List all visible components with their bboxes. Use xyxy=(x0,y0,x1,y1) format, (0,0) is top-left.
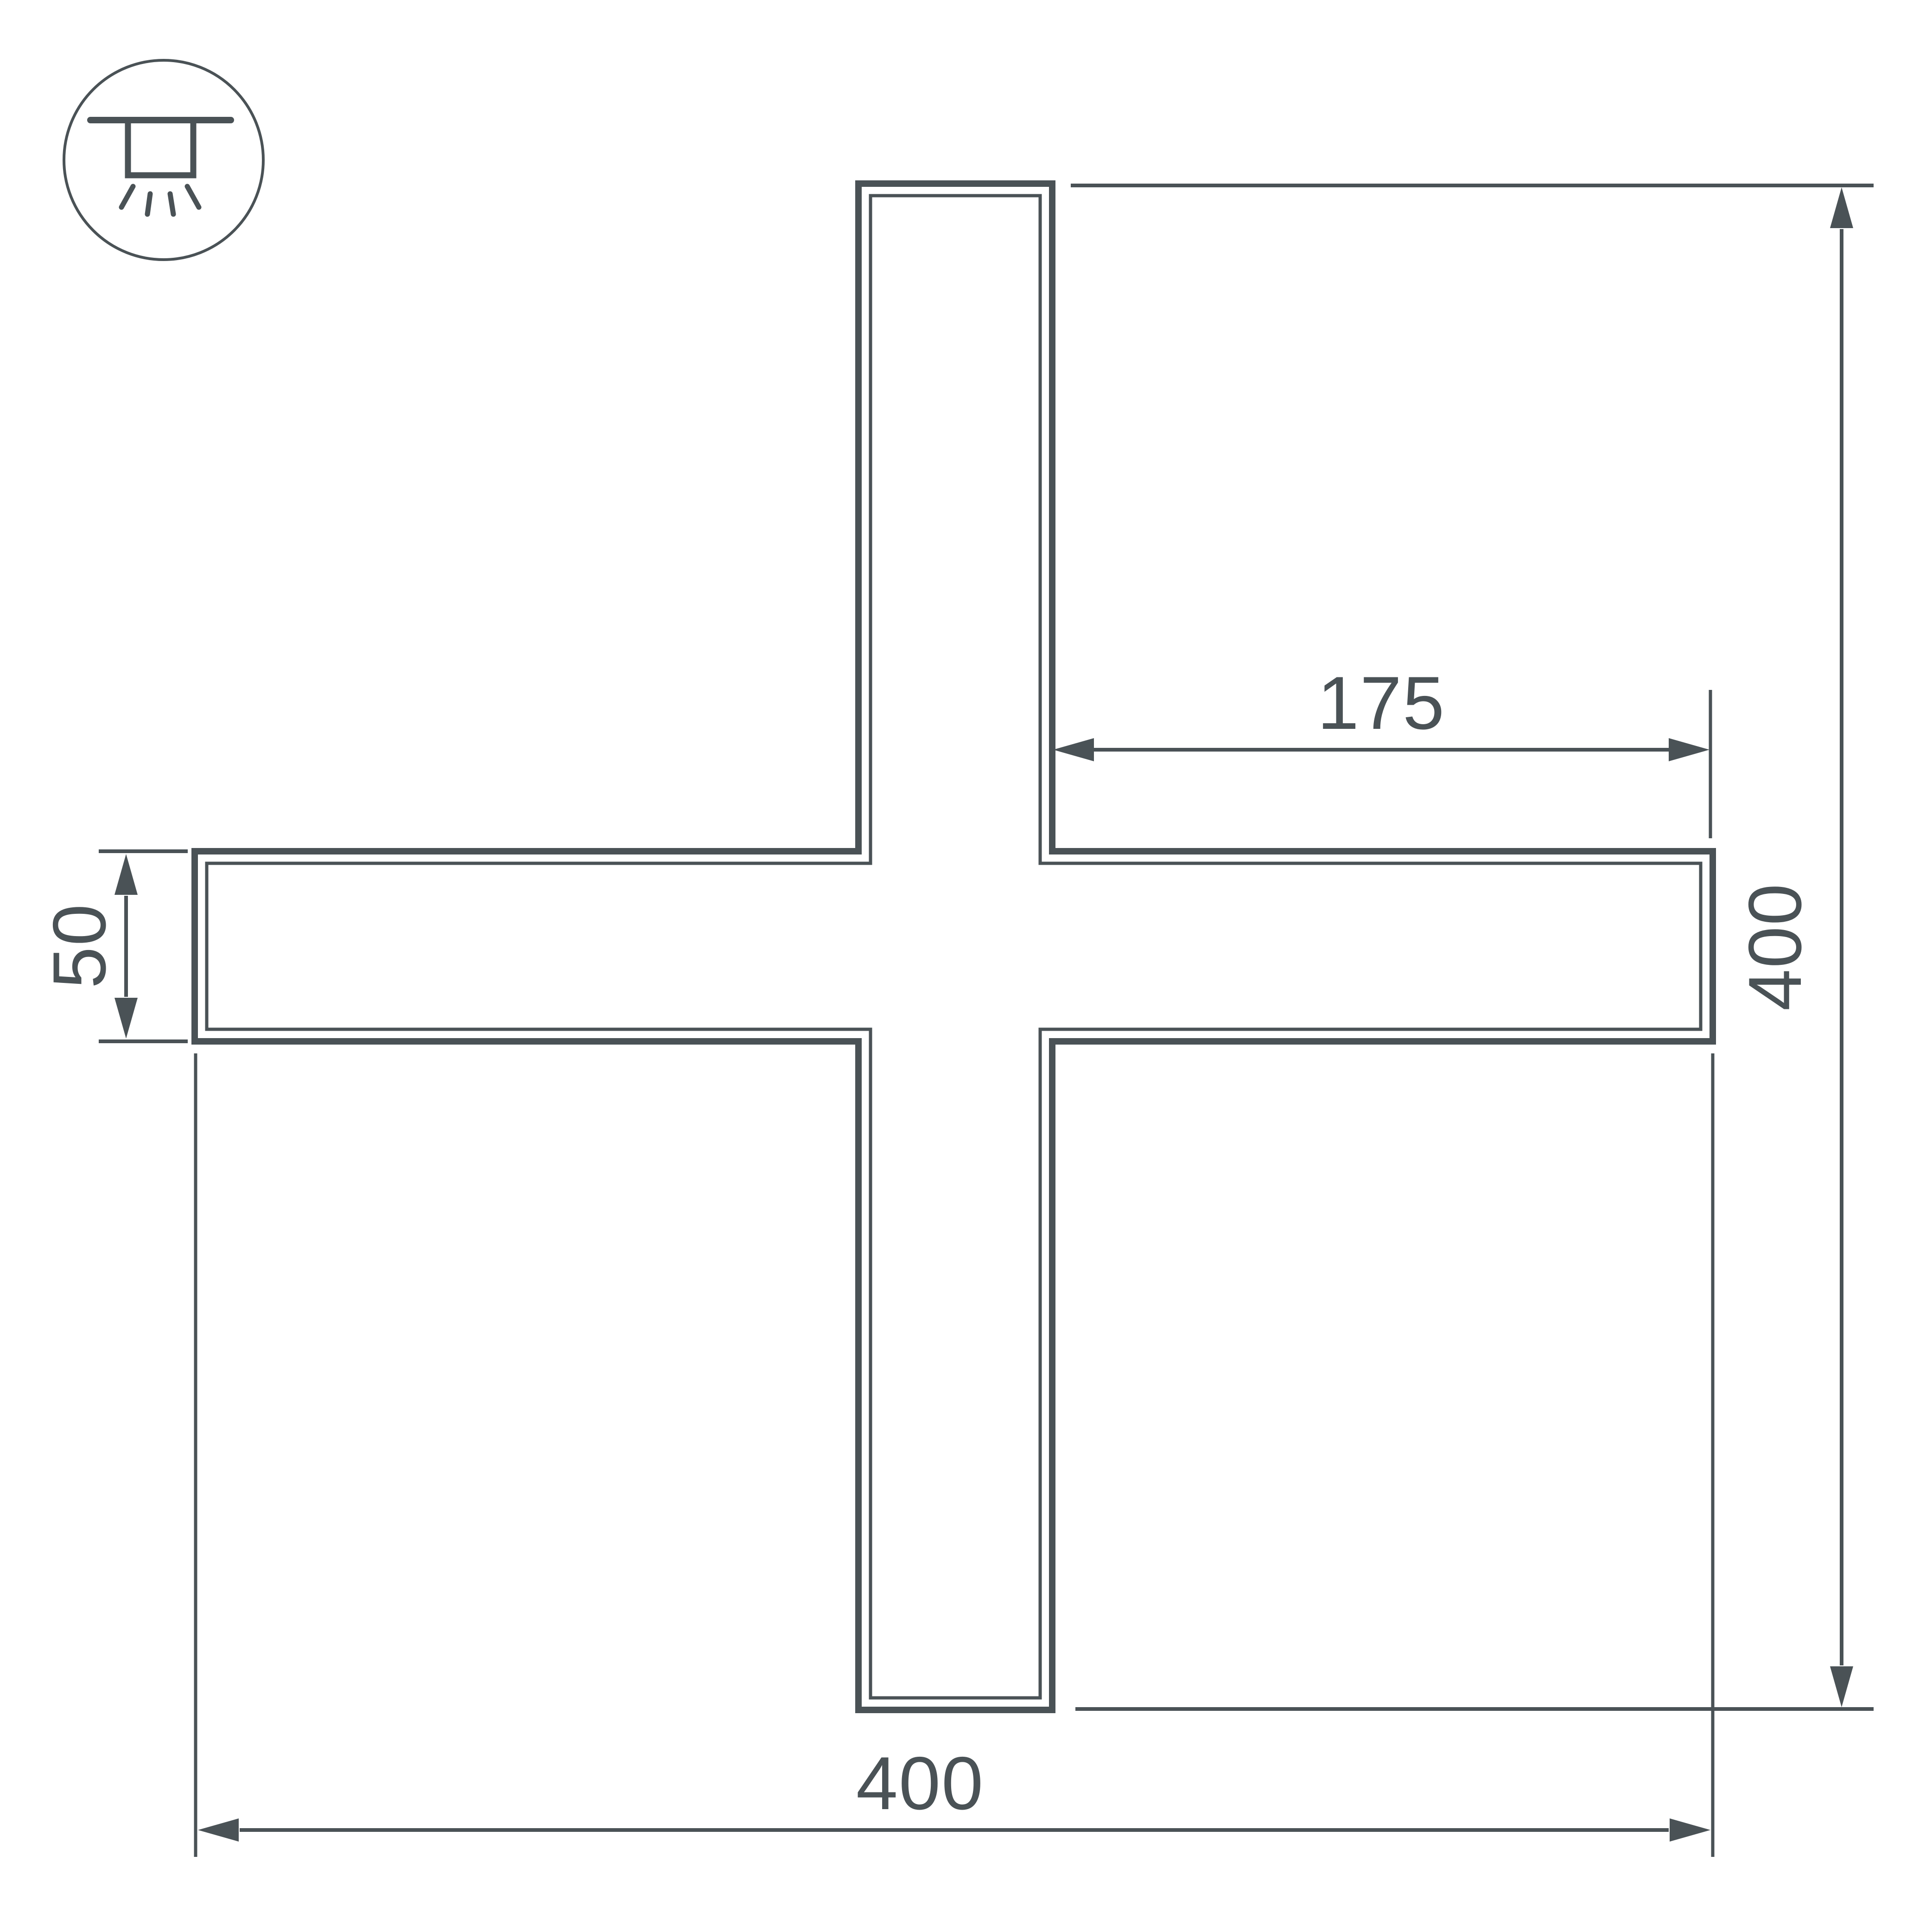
drawing-strokes xyxy=(64,60,1874,1857)
dim-175-arrow-left xyxy=(1053,738,1094,761)
dim-400b-arrow-right xyxy=(1670,1818,1710,1842)
dim-400r-arrow-bottom xyxy=(1830,1666,1853,1707)
light-rays-icon xyxy=(121,186,199,214)
dim-50-label: 50 xyxy=(38,903,121,988)
cross-profile-dimension-drawing: 175 400 50 400 xyxy=(0,0,1932,1932)
dim-400b-arrow-left xyxy=(198,1818,239,1842)
dim-400r-arrow-top xyxy=(1830,187,1853,228)
profile-outer-outline xyxy=(195,184,1713,1710)
dim-50-arrow-bottom xyxy=(114,998,138,1039)
dim-400r-label: 400 xyxy=(1733,883,1817,1011)
drawing-fills: 175 400 50 400 xyxy=(38,187,1853,1842)
dim-175-arrow-right xyxy=(1669,738,1710,761)
fixture-housing xyxy=(128,123,193,175)
dim-50-arrow-top xyxy=(114,854,138,895)
recessed-ceiling-light-icon xyxy=(64,60,263,260)
dim-400b-label: 400 xyxy=(856,1741,984,1825)
icon-circle xyxy=(64,60,263,260)
dim-175-label: 175 xyxy=(1317,661,1445,745)
profile-inner-outline xyxy=(207,196,1701,1698)
dimension-400-bottom xyxy=(196,1053,1713,1857)
cross-profile-outline xyxy=(195,184,1713,1710)
